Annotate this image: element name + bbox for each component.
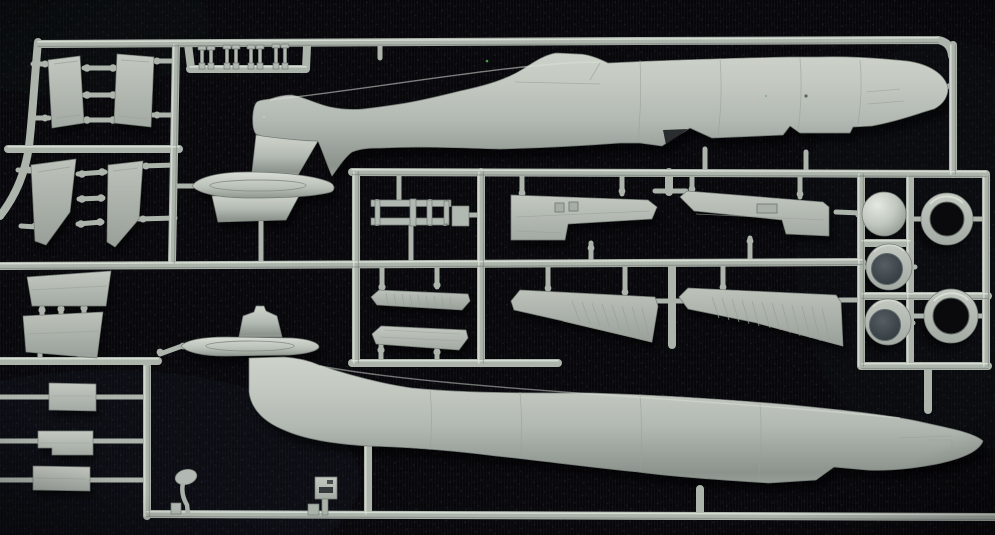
sprue-photo [0,0,995,535]
vignette [0,0,995,535]
photo-frame [0,0,995,535]
